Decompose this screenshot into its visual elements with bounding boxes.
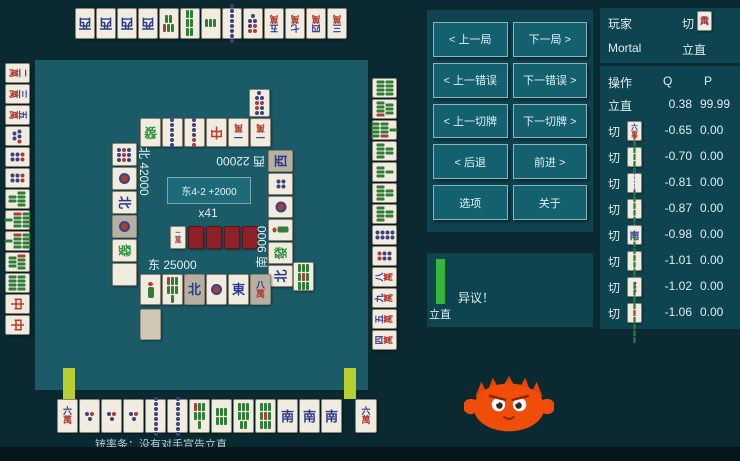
tile-9s <box>627 303 642 323</box>
row-p-value: 0.00 <box>700 305 723 319</box>
header-q: Q <box>663 74 672 88</box>
tile-6s <box>627 199 642 219</box>
tile-S: 南 <box>299 399 320 433</box>
tile-1p <box>206 274 227 305</box>
mortal-action-label: 立直 <box>682 41 706 58</box>
prev-game-button[interactable]: < 上一局 <box>433 22 508 57</box>
tile-8m: 八萬 <box>250 274 271 305</box>
review-row: 切-0.810.00 <box>600 170 740 196</box>
tile-C: 中 <box>5 294 30 314</box>
tile-W: 西 <box>75 8 95 39</box>
review-row: 切南-0.980.00 <box>600 222 740 248</box>
tile-C: 中 <box>5 315 30 335</box>
tile-5m: 五萬 <box>372 309 397 329</box>
tile-8p <box>145 399 166 433</box>
dora-indicator-row: 二萬 <box>170 226 258 249</box>
riichi-bar-label: 立直 <box>429 306 451 322</box>
tile-7s <box>627 147 642 167</box>
tile-F: 發 <box>112 239 137 262</box>
tile-1p <box>112 167 137 190</box>
tile-8p <box>222 8 242 39</box>
discards-north: 北發 <box>112 143 137 286</box>
tile-1m: 一萬 <box>250 118 271 147</box>
score-west: 西 22000 <box>210 153 265 170</box>
tile-6p <box>372 246 397 266</box>
deal-in-bar-left <box>63 368 75 399</box>
tile-6m: 六萬 <box>57 399 78 433</box>
tile-9s <box>255 399 276 433</box>
tile-4p <box>268 173 293 195</box>
row-action-label: 立直 <box>608 97 632 114</box>
row-p-value: 0.00 <box>700 253 723 267</box>
row-q-value: -1.01 <box>652 253 692 267</box>
tile-back <box>206 226 222 249</box>
tile-9s <box>372 120 397 140</box>
tiles-left-counter: x41 <box>167 206 249 220</box>
tile-H <box>112 263 137 286</box>
tile-2m: 二萬 <box>5 63 30 83</box>
drawn-tile: 六萬 <box>355 399 377 433</box>
tile-W: 西 <box>96 8 116 39</box>
tile-6s <box>180 8 200 39</box>
review-row: 切-1.060.00 <box>600 300 740 326</box>
row-q-value: -1.02 <box>652 279 692 293</box>
discards-south: 西發北 <box>268 150 293 287</box>
tile-3p <box>79 399 100 433</box>
mortal-review-app: 西西西西五萬七萬四萬三萬 二萬三萬五萬中中 八萬九萬五萬四萬 六萬南南南 六萬 … <box>0 0 740 461</box>
tile-N: 北 <box>268 265 293 287</box>
move-summary-panel: 玩家 切 六萬 Mortal 立直 <box>600 8 740 63</box>
tile-1p <box>112 215 137 238</box>
tile-1m: 一萬 <box>228 118 249 147</box>
tile-9s <box>293 262 314 291</box>
row-q-value: -0.87 <box>652 201 692 215</box>
row-action-label: 切 <box>608 149 620 166</box>
player-label: 玩家 <box>608 15 632 32</box>
tile-3s <box>201 8 221 39</box>
tile-9p <box>249 89 270 117</box>
next-game-button[interactable]: 下一局 > <box>513 22 588 57</box>
row-action-label: 切 <box>608 175 620 192</box>
row-p-value: 0.00 <box>700 123 723 137</box>
tile-3m: 三萬 <box>5 84 30 104</box>
tile-7s <box>5 252 30 272</box>
tile-back <box>224 226 240 249</box>
ferris-crab-mascot <box>464 356 554 434</box>
game-board <box>35 60 368 390</box>
tile-8s <box>5 273 30 293</box>
tile-3p <box>123 399 144 433</box>
tile-4m: 四萬 <box>372 330 397 350</box>
row-q-value: -0.81 <box>652 175 692 189</box>
discards-west: 發中一萬一萬 <box>140 118 271 147</box>
tile-6s <box>5 189 30 209</box>
row-q-value: -0.98 <box>652 227 692 241</box>
row-action-label: 切 <box>608 227 620 244</box>
review-row: 切六萬-0.650.00 <box>600 118 740 144</box>
header-action: 操作 <box>608 74 632 91</box>
row-p-value: 0.00 <box>700 279 723 293</box>
round-indicator: 东4-2 +2000 <box>167 177 251 204</box>
action-evaluation-table: 操作 Q P 立直0.3899.99切六萬-0.650.00切-0.700.00… <box>600 66 740 329</box>
tile-6p <box>5 168 30 188</box>
header-p: P <box>704 74 712 88</box>
tile-8m: 八萬 <box>372 267 397 287</box>
tile-C: 中 <box>206 118 227 147</box>
tile-S: 南 <box>277 399 298 433</box>
tile-5m: 五萬 <box>5 105 30 125</box>
tile-7s <box>189 399 210 433</box>
discards-south-row2 <box>293 262 314 291</box>
tile-2m: 二萬 <box>170 226 186 249</box>
row-action-label: 切 <box>608 123 620 140</box>
tile-4s <box>372 162 397 182</box>
review-rows: 立直0.3899.99切六萬-0.650.00切-0.700.00切-0.810… <box>600 92 740 326</box>
tile-5p <box>5 126 30 146</box>
step-back-button[interactable]: < 后退 <box>433 144 508 179</box>
row-action-label: 切 <box>608 253 620 270</box>
player-discard-tile: 六萬 <box>697 11 712 31</box>
tile-W: 西 <box>268 150 293 172</box>
discards-east-extra <box>140 309 161 340</box>
tile-1p <box>268 196 293 218</box>
tile-7s <box>162 274 183 305</box>
tile-8s <box>233 399 254 433</box>
tile-8p <box>167 399 188 433</box>
tile-6m: 六萬 <box>355 399 377 433</box>
bottom-strip <box>0 447 740 461</box>
tile-W: 西 <box>117 8 137 39</box>
discards-east: 北東八萬 <box>140 274 271 305</box>
mortal-label: Mortal <box>608 41 641 55</box>
next-discard-button[interactable]: 下一切牌 > <box>513 104 588 139</box>
tile-6s <box>211 399 232 433</box>
row-q-value: -0.70 <box>652 149 692 163</box>
player-action-label: 切 <box>682 15 694 32</box>
hand-south: 八萬九萬五萬四萬 <box>372 78 397 350</box>
row-p-value: 0.00 <box>700 149 723 163</box>
tile-6s <box>372 204 397 224</box>
row-p-value: 0.00 <box>700 227 723 241</box>
tile-6s <box>372 183 397 203</box>
row-q-value: -0.65 <box>652 123 692 137</box>
tile-6m: 六萬 <box>697 11 712 31</box>
tile-7s <box>372 99 397 119</box>
tile-3p <box>101 399 122 433</box>
row-q-value: -1.06 <box>652 305 692 319</box>
prev-mistake-button[interactable]: < 上一错误 <box>433 63 508 98</box>
tile-blank <box>140 309 161 340</box>
tile-back <box>188 226 204 249</box>
tile-6p <box>184 118 205 147</box>
row-action-label: 切 <box>608 305 620 322</box>
action-probability-panel: 立直 异议！ <box>427 253 593 327</box>
tile-7p <box>243 8 263 39</box>
tile-F: 發 <box>140 118 161 147</box>
tile-4m: 四萬 <box>306 8 326 39</box>
riichi-probability-bar <box>436 259 445 304</box>
tile-1s <box>140 274 161 305</box>
tile-8p <box>162 118 183 147</box>
next-mistake-button[interactable]: 下一错误 > <box>513 63 588 98</box>
about-button[interactable]: 关于 <box>513 185 588 220</box>
prev-discard-button[interactable]: < 上一切牌 <box>433 104 508 139</box>
row-p-value: 0.00 <box>700 175 723 189</box>
tile-7m: 七萬 <box>285 8 305 39</box>
tile-8s <box>627 251 642 271</box>
score-east: 东 25000 <box>148 256 197 273</box>
tile-N: 北 <box>112 191 137 214</box>
row-q-value: 0.38 <box>652 97 692 111</box>
review-row: 立直0.3899.99 <box>600 92 740 118</box>
tile-3m: 三萬 <box>327 8 347 39</box>
tile-9s <box>5 210 30 230</box>
hand-east: 六萬南南南 <box>57 399 342 433</box>
tile-5s <box>159 8 179 39</box>
review-row: 切-0.700.00 <box>600 144 740 170</box>
tile-8s <box>372 78 397 98</box>
tile-8p <box>372 225 397 245</box>
deal-in-bar-right <box>344 368 356 399</box>
tile-5m: 五萬 <box>264 8 284 39</box>
score-north: 北 42000 <box>136 147 153 196</box>
step-forward-button[interactable]: 前进 > <box>513 144 588 179</box>
navigation-panel: < 上一局 下一局 > < 上一错误 下一错误 > < 上一切牌 下一切牌 > … <box>427 10 593 232</box>
tile-W: 西 <box>138 8 158 39</box>
tile-9p <box>112 143 137 166</box>
score-south: 南 9000 <box>253 226 270 268</box>
tile-6s <box>372 141 397 161</box>
row-action-label: 切 <box>608 201 620 218</box>
review-row: 切-1.010.00 <box>600 248 740 274</box>
options-button[interactable]: 选项 <box>433 185 508 220</box>
tile-S: 南 <box>321 399 342 433</box>
row-p-value: 0.00 <box>700 201 723 215</box>
tile-6p <box>5 147 30 167</box>
discards-west-row2 <box>249 89 270 117</box>
tile-9s <box>5 231 30 251</box>
tile-9m: 九萬 <box>372 288 397 308</box>
review-row: 切-1.020.00 <box>600 274 740 300</box>
tile-N: 北 <box>184 274 205 305</box>
row-p-value: 99.99 <box>700 97 730 111</box>
objection-label: 异议！ <box>458 289 494 306</box>
hand-north: 二萬三萬五萬中中 <box>5 63 30 335</box>
review-row: 切-0.870.00 <box>600 196 740 222</box>
tile-F: 發 <box>268 242 293 264</box>
tile-E: 東 <box>228 274 249 305</box>
hand-west: 西西西西五萬七萬四萬三萬 <box>75 8 347 39</box>
row-action-label: 切 <box>608 279 620 296</box>
tile-1s <box>268 219 293 241</box>
